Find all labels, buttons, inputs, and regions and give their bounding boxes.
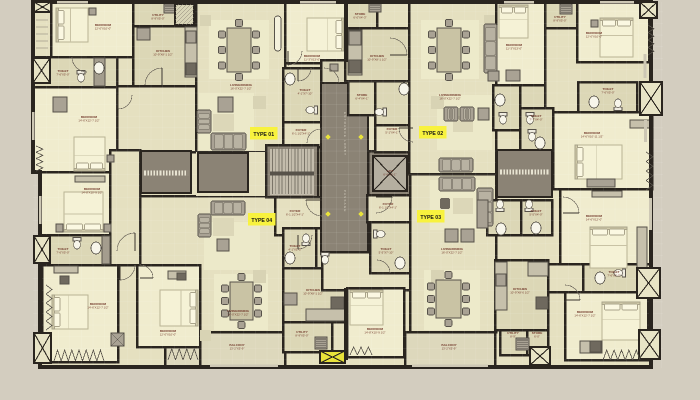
svg-text:4'-1"X5'-5": 4'-1"X5'-5" (288, 247, 301, 251)
svg-text:14'-8"X10'-9 1/2": 14'-8"X10'-9 1/2" (364, 330, 385, 334)
svg-text:10'-9"X8'-0 1/2": 10'-9"X8'-0 1/2" (510, 290, 530, 294)
svg-text:14'-6"X12'-7 1/2": 14'-6"X12'-7 1/2" (574, 313, 595, 317)
svg-text:5'-5"X7'-10": 5'-5"X7'-10" (379, 250, 394, 254)
svg-text:6'-0": 6'-0" (534, 334, 540, 338)
svg-text:10'-9"X8'-1 1/2": 10'-9"X8'-1 1/2" (367, 57, 387, 61)
svg-text:14'-6"X10'-11 1/2": 14'-6"X10'-11 1/2" (581, 134, 604, 138)
svg-text:ENTRANCE LOBBY: ENTRANCE LOBBY (343, 112, 347, 156)
svg-text:8'-9"X5'-0": 8'-9"X5'-0" (553, 18, 566, 22)
svg-text:5'-5"X4'-0": 5'-5"X4'-0" (529, 212, 542, 216)
svg-text:TYPE 01: TYPE 01 (253, 132, 274, 138)
svg-text:TYPE 02: TYPE 02 (422, 131, 443, 137)
svg-text:14'-6"X12'-7 1/2": 14'-6"X12'-7 1/2" (87, 305, 108, 309)
svg-text:TYPE 03: TYPE 03 (420, 215, 441, 221)
svg-text:8'-9": 8'-9" (510, 334, 516, 338)
svg-text:16'-0"X22'-7 1/2": 16'-0"X22'-7 1/2" (439, 96, 460, 100)
svg-text:13'-2"X5'-9": 13'-2"X5'-9" (442, 346, 457, 350)
svg-text:8'-9"X5'-0": 8'-9"X5'-0" (295, 333, 308, 337)
svg-text:7'-6"X5'-0": 7'-6"X5'-0" (607, 273, 620, 277)
svg-text:8'-9"X5'-0": 8'-9"X5'-0" (151, 16, 164, 20)
svg-text:14'-8"X10'-9 1/2": 14'-8"X10'-9 1/2" (81, 190, 102, 194)
svg-text:13'-2"X5'-9": 13'-2"X5'-9" (230, 346, 245, 350)
svg-text:16'-0"X22'-7 1/2": 16'-0"X22'-7 1/2" (230, 86, 251, 90)
svg-text:14'-6"X12'-0": 14'-6"X12'-0" (586, 217, 602, 221)
svg-text:6'-4"X4'-1": 6'-4"X4'-1" (355, 96, 368, 100)
svg-text:16'-0"X22'-7 1/2": 16'-0"X22'-7 1/2" (227, 312, 248, 316)
svg-text:16'-0"X22'-7 1/2": 16'-0"X22'-7 1/2" (441, 250, 462, 254)
svg-text:12'-0"X10'-0": 12'-0"X10'-0" (95, 26, 111, 30)
svg-text:4'-1"X7'-10": 4'-1"X7'-10" (298, 91, 313, 95)
svg-text:11'-3"X13'-0": 11'-3"X13'-0" (506, 46, 522, 50)
svg-text:12'-0"X10'-0": 12'-0"X10'-0" (586, 34, 602, 38)
svg-text:6'-1 1/2"X4'-1": 6'-1 1/2"X4'-1" (379, 205, 397, 209)
svg-text:12'-0"X10'-0": 12'-0"X10'-0" (160, 332, 176, 336)
svg-text:5'-1"X4'-1": 5'-1"X4'-1" (385, 130, 398, 134)
svg-text:6'-1 1/2"X4'-1": 6'-1 1/2"X4'-1" (292, 131, 310, 135)
svg-text:TYPE 04: TYPE 04 (251, 218, 272, 224)
svg-text:10'-9"X8'-1 1/2": 10'-9"X8'-1 1/2" (303, 291, 323, 295)
svg-text:PASSAGE: PASSAGE (343, 190, 347, 213)
svg-text:7'-6"X5'-0": 7'-6"X5'-0" (56, 250, 69, 254)
svg-text:11'-3"X13'-0": 11'-3"X13'-0" (304, 57, 320, 61)
svg-text:7'-6"X5'-0": 7'-6"X5'-0" (56, 72, 69, 76)
svg-text:6'-8"X5'-1": 6'-8"X5'-1" (383, 172, 396, 176)
svg-text:7'-7"X4'-0": 7'-7"X4'-0" (529, 117, 542, 121)
svg-text:6'-0"X4'-3": 6'-0"X4'-3" (353, 15, 366, 19)
svg-text:10'-9"X8'-1 1/2": 10'-9"X8'-1 1/2" (153, 52, 173, 56)
svg-text:6'-1 1/2"X4'-1": 6'-1 1/2"X4'-1" (286, 212, 304, 216)
svg-text:14'-6"X12'-7 1/2": 14'-6"X12'-7 1/2" (78, 118, 99, 122)
svg-text:7'-6"X5'-0": 7'-6"X5'-0" (601, 90, 614, 94)
